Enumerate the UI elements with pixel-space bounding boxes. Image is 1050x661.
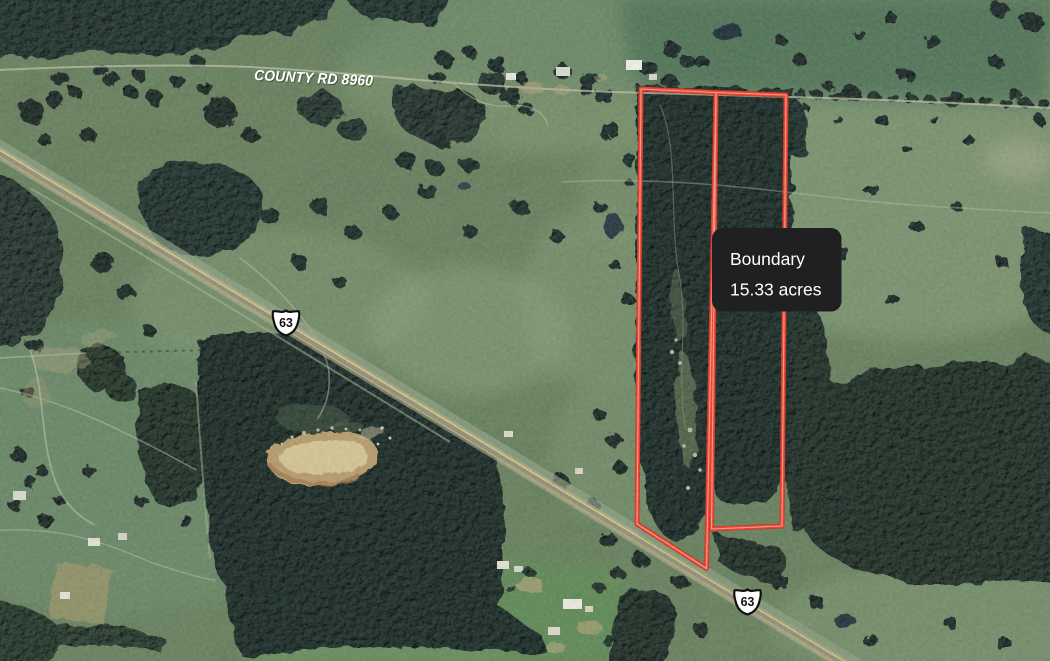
svg-text:63: 63 [279, 316, 293, 330]
svg-text:15.33 acres: 15.33 acres [730, 280, 822, 300]
svg-text:63: 63 [741, 595, 755, 609]
svg-text:Boundary: Boundary [730, 249, 805, 269]
